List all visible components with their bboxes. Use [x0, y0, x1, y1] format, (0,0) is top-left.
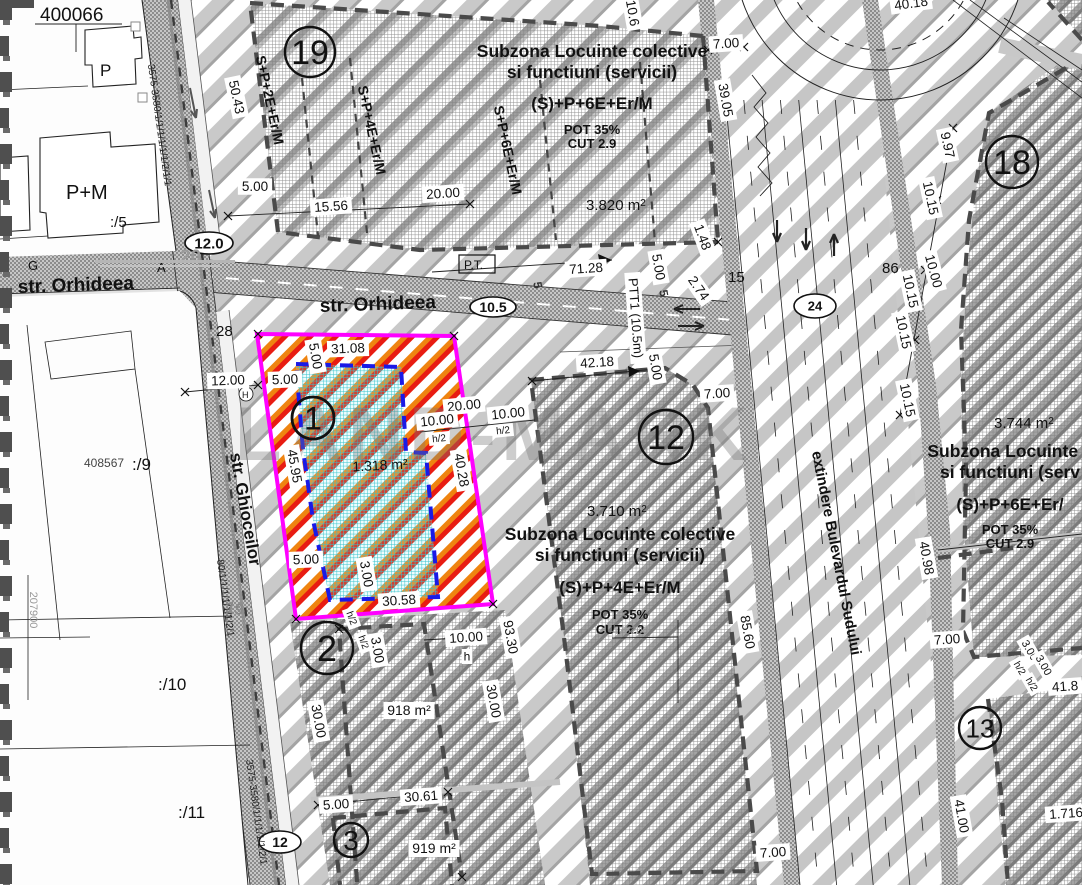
svg-text:3.744 m2: 3.744 m2 — [994, 415, 1054, 432]
svg-text::/5: :/5 — [110, 214, 127, 231]
svg-text:400066: 400066 — [40, 5, 103, 26]
svg-text:P+M: P+M — [66, 182, 108, 204]
svg-text:7.00: 7.00 — [759, 844, 786, 861]
svg-text:3: 3 — [343, 825, 359, 856]
svg-text:si functiuni (servicii): si functiuni (servicii) — [535, 545, 705, 565]
svg-text::/11: :/11 — [178, 803, 205, 822]
svg-text:3.710 m2: 3.710 m2 — [587, 503, 647, 520]
svg-text:POT 35%: POT 35% — [982, 522, 1039, 537]
svg-text:19: 19 — [224, 599, 245, 619]
svg-text:CUT 2.9: CUT 2.9 — [986, 536, 1034, 551]
svg-text:Subzona Locuinte colective: Subzona Locuinte colective — [477, 41, 708, 61]
svg-text:918 m²: 918 m² — [387, 702, 431, 718]
svg-text:1.716: 1.716 — [1049, 805, 1082, 822]
svg-text:CUT 2.9: CUT 2.9 — [568, 136, 616, 151]
svg-text:12.00: 12.00 — [211, 372, 245, 388]
svg-text:5.00: 5.00 — [293, 551, 320, 567]
svg-text:12: 12 — [272, 834, 288, 850]
svg-text:28: 28 — [216, 323, 233, 340]
svg-text:P.T.: P.T. — [464, 258, 483, 272]
svg-text:42.18: 42.18 — [580, 354, 615, 371]
svg-text:7.00: 7.00 — [712, 35, 739, 52]
svg-text:919 m²: 919 m² — [412, 840, 456, 856]
svg-text:POT 35%: POT 35% — [592, 607, 649, 622]
svg-text:476200: 476200 — [612, 625, 649, 637]
svg-text:15: 15 — [728, 269, 745, 286]
svg-text:POT 35%: POT 35% — [564, 122, 621, 137]
svg-text:10.5: 10.5 — [479, 299, 506, 315]
svg-text:str. Orhideea: str. Orhideea — [319, 292, 436, 317]
svg-text:h/2: h/2 — [432, 433, 447, 445]
svg-text:5.00: 5.00 — [322, 796, 349, 813]
svg-text:18: 18 — [993, 144, 1031, 182]
svg-text:10.00: 10.00 — [449, 629, 484, 646]
svg-text:h/2: h/2 — [496, 425, 511, 437]
svg-text:h: h — [464, 649, 471, 663]
svg-text:19: 19 — [291, 34, 329, 72]
svg-text:str. Orhideea: str. Orhideea — [17, 273, 134, 298]
svg-text:5.00: 5.00 — [272, 371, 299, 387]
svg-text:Subzona Locuinte colective: Subzona Locuinte colective — [505, 524, 736, 544]
svg-text:3.820 m2: 3.820 m2 — [586, 197, 646, 214]
svg-text:86: 86 — [882, 260, 899, 277]
svg-text:41.8: 41.8 — [1051, 678, 1078, 695]
svg-text:7.00: 7.00 — [703, 385, 730, 402]
svg-text:13: 13 — [966, 713, 995, 743]
svg-text:Subzona Locuinte c: Subzona Locuinte c — [927, 441, 1082, 461]
svg-text:5.00: 5.00 — [242, 179, 268, 194]
svg-text:1: 1 — [304, 401, 322, 437]
svg-text:(S)+P+6E+Er/M: (S)+P+6E+Er/M — [531, 94, 652, 113]
svg-text:207900: 207900 — [27, 592, 39, 629]
svg-text:15.56: 15.56 — [314, 198, 349, 215]
svg-text:20.00: 20.00 — [426, 185, 461, 202]
svg-text:30.61: 30.61 — [404, 788, 439, 805]
svg-text:P: P — [100, 61, 111, 80]
svg-text::/9: :/9 — [132, 455, 151, 474]
svg-text:si functiuni (serv: si functiuni (serv — [940, 462, 1080, 482]
svg-text:(S)+P+4E+Er/M: (S)+P+4E+Er/M — [559, 578, 680, 597]
svg-text:12: 12 — [647, 419, 685, 457]
svg-text:(S)+P+6E+Er/: (S)+P+6E+Er/ — [956, 495, 1064, 514]
svg-text:si functiuni (servicii): si functiuni (servicii) — [507, 62, 677, 82]
svg-text:G: G — [28, 258, 38, 273]
svg-text:71.28: 71.28 — [569, 260, 604, 277]
svg-text:30.58: 30.58 — [382, 592, 417, 609]
svg-text:2: 2 — [317, 628, 337, 669]
svg-text:7.00: 7.00 — [933, 631, 960, 648]
svg-text:31.08: 31.08 — [331, 340, 365, 356]
svg-text:408567: 408567 — [84, 456, 124, 470]
svg-text:20: 20 — [180, 247, 201, 268]
svg-text::/10: :/10 — [158, 675, 186, 694]
svg-text:1.318 m²: 1.318 m² — [352, 456, 408, 475]
svg-text:H: H — [242, 390, 249, 400]
svg-text:24: 24 — [808, 299, 823, 314]
